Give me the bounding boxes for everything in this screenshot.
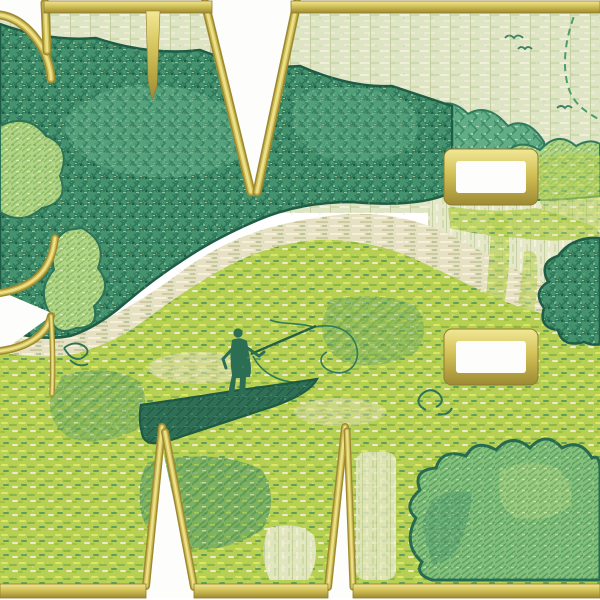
rectangle-1-white bbox=[456, 161, 526, 193]
gold-band-top-right bbox=[291, 1, 600, 13]
embroidery-preview bbox=[0, 0, 600, 600]
gold-band-bottom-mid bbox=[194, 584, 328, 598]
fabric-noise bbox=[0, 0, 600, 600]
rectangle-2-white bbox=[456, 341, 526, 373]
embroidery-design bbox=[0, 0, 600, 600]
gold-band-bottom-right bbox=[353, 584, 600, 598]
gold-band-bottom-left bbox=[0, 584, 146, 598]
gold-band-top-left bbox=[44, 1, 212, 13]
